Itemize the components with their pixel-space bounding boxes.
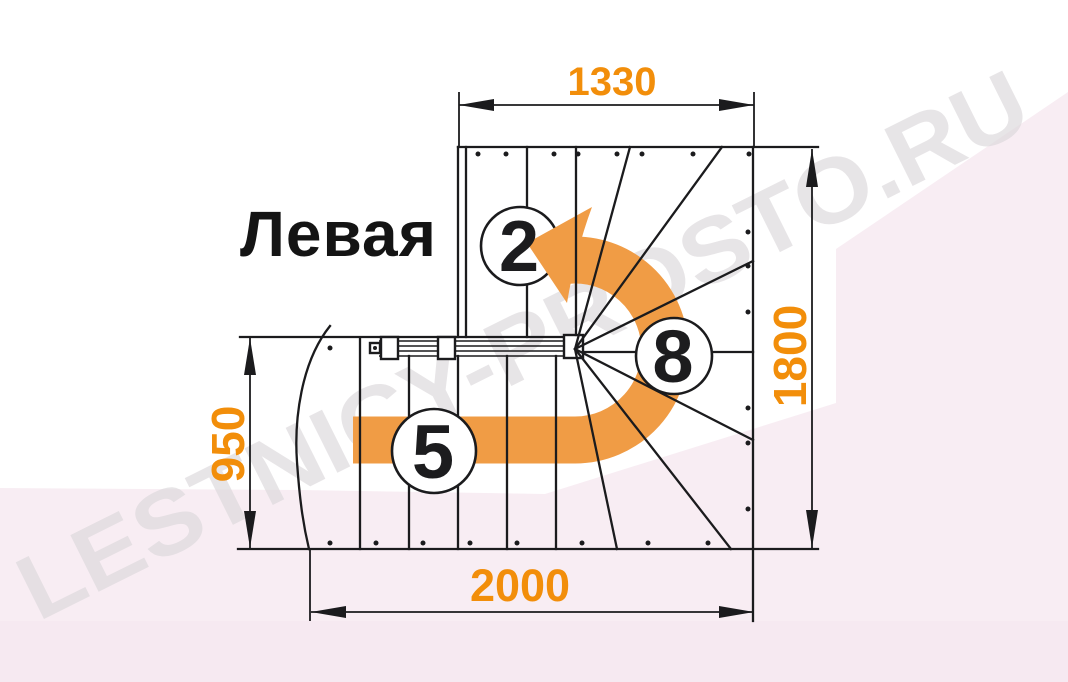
dimension-label-bottom: 2000 bbox=[470, 560, 570, 611]
step-number-winder: 8 bbox=[652, 315, 693, 398]
staircase-plan-drawing: LESTNICY-PROSTO.RU bbox=[0, 0, 1068, 682]
background-strip-bottom bbox=[0, 621, 1068, 682]
rail-post bbox=[381, 337, 398, 359]
staircase-plan-page: LESTNICY-PROSTO.RU bbox=[0, 0, 1068, 682]
dim-arrowhead-left bbox=[459, 99, 494, 111]
step-number-upper: 2 bbox=[499, 207, 539, 287]
step-number-lower: 5 bbox=[412, 410, 454, 495]
dim-arrowhead-right bbox=[719, 99, 754, 111]
dimension-label-right: 1800 bbox=[764, 305, 816, 407]
dimension-label-top: 1330 bbox=[568, 60, 657, 104]
dimension-top: 1330 bbox=[459, 60, 754, 146]
dimension-label-left: 950 bbox=[202, 406, 254, 483]
drawing-title: Левая bbox=[240, 198, 437, 270]
rail-post bbox=[438, 337, 455, 359]
dim-arrowhead-up bbox=[244, 338, 256, 375]
